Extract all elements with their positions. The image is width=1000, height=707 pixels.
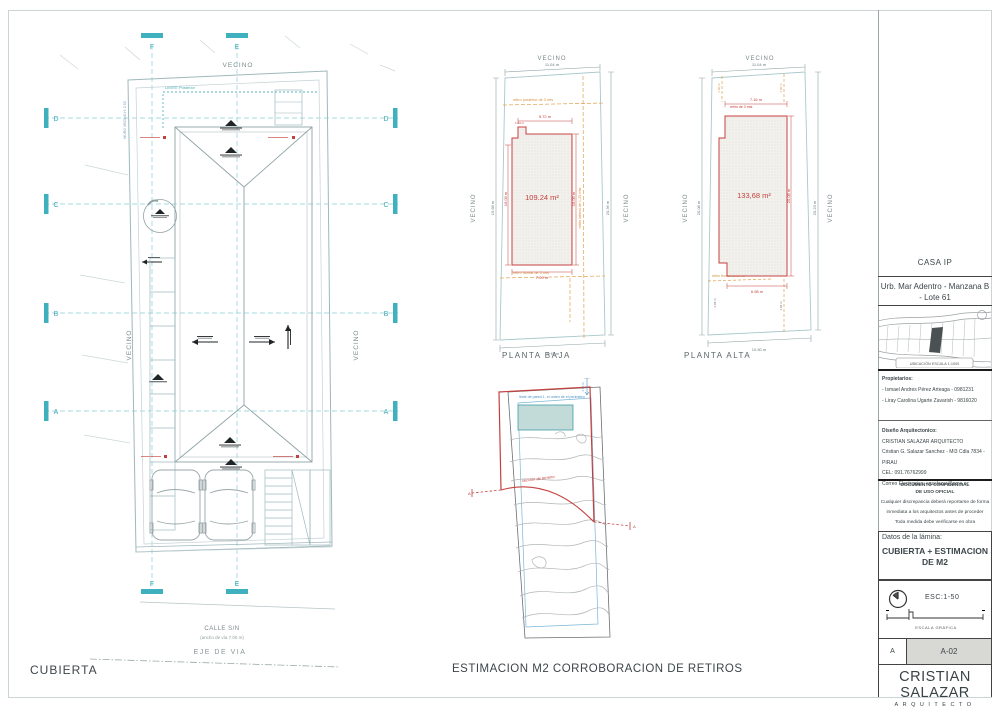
dim-red-right: 20.08 m [786,188,791,203]
sheet-title-left: CUBIERTA [30,663,98,677]
roof-plan-drawing: F E F E D D C C B B A A LIMITE Posterior [30,25,410,670]
pool [518,405,573,430]
revision-letter: A [879,639,907,664]
retiro-posterior-label: retiro posterior de 3 mts [513,98,553,102]
firm-name: CRISTIAN SALAZAR [879,669,991,701]
car-2 [203,470,255,540]
muro-vecino-label: MURO VECINO H: 2.50 [123,101,127,138]
design-label: Diseño Arquitectonico: [882,426,988,437]
retiro-lateral-label: retiro lateral de 1.25 mts [578,187,582,228]
dim-red-right: 16.06 m [571,191,576,206]
grid-row-c-left: C [53,202,58,209]
grid-lines [44,45,398,587]
section-label: sección de terreno [522,474,556,483]
grid-col-e-bottom: E [235,581,240,588]
scale-value: ESC:1-50 [925,594,959,601]
vecino-right-label: VECINO [353,330,360,361]
project-location: Urb. Mar Adentro - Manzana B - Lote 61 [878,276,992,306]
dim-left: 19.68 m [490,200,495,215]
vecino-left-label: VECINO [471,193,477,222]
location-line1: Urb. Mar Adentro - Manzana B [878,281,992,292]
grid-row-a-left: A [54,409,59,416]
grid-row-d-right: D [383,116,388,123]
planta-baja-title: PLANTA BAJA [502,351,571,360]
grid-col-e-top: E [235,44,240,51]
sheet-name: CUBIERTA + ESTIMACION DE M2 [879,546,991,568]
design-phone: CEL: 091.76762999 [882,468,988,479]
confidential-line1: DOCUMENTO CONFIDENCIAL [878,482,992,489]
dim-top: 11.04 m [545,62,560,67]
dim-right: 20.36 m [605,200,610,215]
separator-thin-1 [878,420,992,421]
back-patio: LIMITE Posterior [163,85,318,128]
confidential-note: DOCUMENTO CONFIDENCIAL DE USO OFICIAL [878,482,992,496]
sheet-number: A-02 [907,639,991,664]
grid-col-f-bottom: F [150,581,154,588]
stairs [265,470,330,545]
retiro-top-label: retiro de 3 mts [730,105,753,109]
dim-small-left: 3.08 m [713,298,717,308]
verification-notes: Cualquier discrepancia deberá reportarse… [878,498,992,528]
owner-1: - Ismael Andres Pérez Arteaga - 0981231 [882,385,988,396]
project-name: CASA IP [878,258,992,267]
dim-orange-right: 1.00 m [779,83,783,93]
section-marker-left: A [468,491,471,496]
sheet-title-center: ESTIMACION M2 CORROBORACION DE RETIROS [452,663,743,675]
dim-red-top: 7.16 m [750,97,763,102]
grid-caps [44,33,398,594]
perimeter-note: linde de pared 1, el orden de el perimet… [519,395,585,399]
owners-label: Propietarios: [882,374,988,385]
vecino-right-label: VECINO [624,193,630,222]
planta-alta-title: PLANTA ALTA [684,351,751,360]
dim-red-bottom: 6.98 m [751,289,764,294]
section-marker-right: A [633,524,636,529]
owner-2: - Liray Carolina Ugarte Zavarish - 98160… [882,396,988,407]
car-1 [150,470,202,540]
grid-row-b-right: B [384,311,389,318]
location-map: UBICACIÓN ESCALA 1:1000 [878,307,992,368]
eje-de-via-label: EJE DE VIA [194,649,247,656]
map-caption: UBICACIÓN ESCALA 1:1000 [910,361,960,366]
dim-small-right: 1.08 m [779,301,783,311]
grid-letters: F E F E D D C C B B A A [53,44,388,588]
vecino-top-label: VECINO [223,62,254,69]
roof-slope-symbols [142,120,291,469]
map-subject-lot [929,327,943,353]
design-firm: CRISTIAN SALAZAR ARQUITECTO [882,437,988,448]
datos-label: Datos de la lámina: [879,532,991,543]
dim-red-notch: 1.43 m [515,121,525,125]
garage-slab [136,542,335,609]
dim-red-bottom: 7.20 m [536,275,549,280]
eave-markers [140,136,299,458]
note-2: inmediata a los arquitectos antes de pro… [878,508,992,518]
grid-row-b-left: B [54,311,59,318]
dim-right: 20.23 m [812,200,817,215]
neighbor-ticks [60,36,395,443]
vecino-right-label: VECINO [828,193,834,222]
revision-row: A A-02 [878,639,992,665]
grid-row-a-right: A [384,409,389,416]
dim-red-top: 5.72 m [539,114,552,119]
design-address: Cristian G. Salazar Sanchez - MI3 Cdla 7… [882,447,988,468]
vecino-left-label: VECINO [126,330,133,361]
graphic-scale-bar [883,607,989,623]
blue-dim-value: 1.00 m [581,382,585,392]
separator-heavy-1 [878,369,992,371]
graphic-scale-caption: ESCALA GRÁFICA [879,625,993,630]
grid-col-f-top: F [150,44,154,51]
scale-box: ESC:1-50 ESCALA GRÁFICA [878,580,992,639]
calle-label: CALLE S/N [204,626,239,632]
dim-top: 11.04 m [752,62,767,67]
planta-baja-drawing: VECINO VECINO VECINO 11.04 m 10.43 m 19.… [465,48,640,370]
separator-heavy-2 [878,479,992,481]
firm-signature: CRISTIAN SALAZAR ARQUITECTO [878,665,992,697]
dim-orange-left: 1.00 m [717,83,721,93]
grid-row-c-right: C [383,202,388,209]
grid-row-d-left: D [53,116,58,123]
site-topography-drawing: A A sección de terreno linde de pared 1,… [460,378,675,650]
roof-outline [175,127,312,462]
vecino-left-label: VECINO [683,193,689,222]
eje-de-via-line [90,659,340,667]
location-line2: - Lote 61 [878,292,992,303]
owners-block: Propietarios: - Ismael Andres Pérez Arte… [878,372,992,409]
sheet-data-box: Datos de la lámina: CUBIERTA + ESTIMACIO… [878,531,992,580]
note-1: Cualquier discrepancia deberá reportarse… [878,498,992,508]
area-baja-value: 109.24 m² [525,193,559,202]
dim-left: 20.08 m [696,200,701,215]
planta-alta-drawing: VECINO VECINO VECINO 11.04 m 10.50 m 20.… [672,48,847,370]
dim-red-left: 16.06 m [503,191,508,206]
firm-subtitle: ARQUITECTO [879,702,991,707]
drawing-sheet: F E F E D D C C B B A A LIMITE Posterior [0,0,1000,707]
note-3: Toda medida debe verificarse en obra [878,518,992,528]
parcel-boundary [128,71,332,552]
limite-posterior-label: LIMITE Posterior [165,85,196,90]
calle-ancho-label: (ancho de vía 7.00 m) [200,635,244,640]
area-alta-value: 133,68 m² [737,191,771,200]
dim-bottom: 10.50 m [752,347,767,352]
confidential-line2: DE USO OFICIAL [878,489,992,496]
